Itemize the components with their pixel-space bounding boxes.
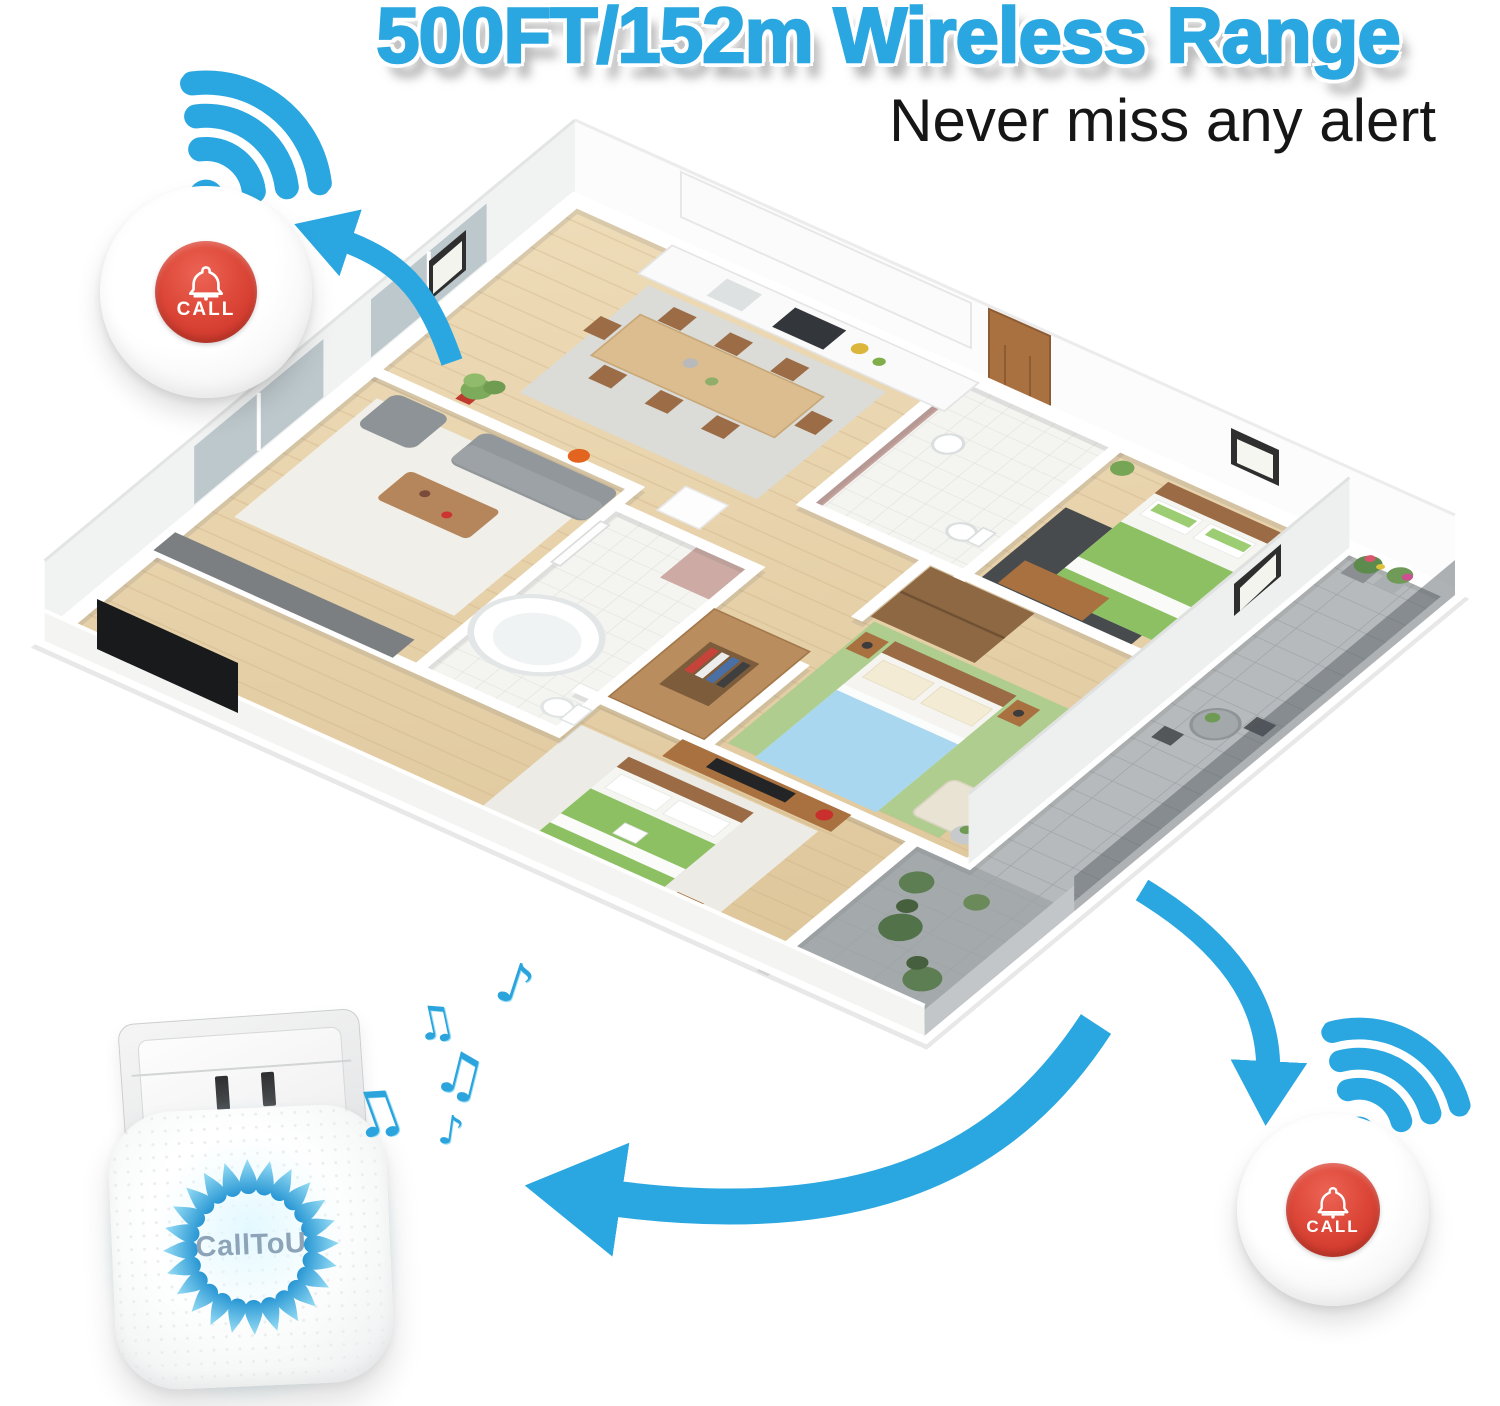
arrow-to-receiver [596,1024,1096,1207]
bell-icon [184,263,228,301]
arrow-to-bottom-right-button [1142,890,1268,1078]
call-button-label: CALL [1306,1217,1359,1237]
call-button-top-left: CALL [100,186,312,398]
call-button-label: CALL [177,299,236,321]
bell-icon [1313,1184,1353,1219]
page-subtitle: Never miss any alert [889,86,1436,155]
receiver-device: CallToU [106,1102,396,1392]
call-button-bottom-right: CALL [1237,1114,1429,1306]
page-title: 500FT/152m Wireless Range [318,0,1458,81]
